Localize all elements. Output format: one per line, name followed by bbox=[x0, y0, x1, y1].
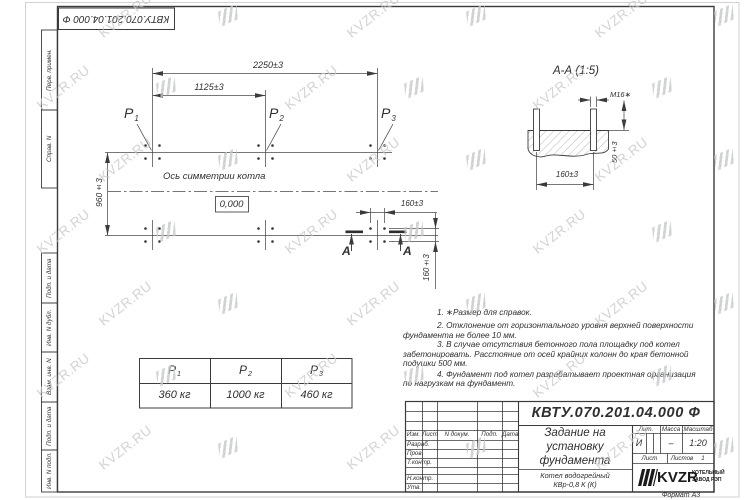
table-header-p3-sub: 3 bbox=[319, 371, 323, 378]
stamp-mass-label: Масса bbox=[660, 427, 682, 433]
dim-160-vertical: 160±3 bbox=[421, 248, 433, 288]
dim-2250: 2250±3 bbox=[238, 61, 298, 70]
stamp-product-line-2: КВр-0,8 К (К) bbox=[518, 481, 632, 488]
dim-160-horizontal: 160±3 bbox=[390, 200, 434, 208]
p1-base: P bbox=[124, 105, 133, 121]
note-line-7: 4. Фундамент под котел разрабатывает про… bbox=[437, 371, 696, 379]
stamp-col-podp: Подп. bbox=[477, 432, 502, 438]
stamp-row-nkontr: Н.контр. bbox=[407, 476, 433, 482]
table-header-p1-base: P bbox=[168, 363, 176, 377]
stamp-col-izm: Изм. bbox=[405, 432, 422, 438]
stamp-doc-number: КВТУ.070.201.04.000 Ф bbox=[518, 402, 714, 425]
table-value-p2: 1000 кг bbox=[210, 383, 281, 408]
drawing-linework bbox=[0, 0, 750, 500]
stamp-title-line-1: Задание на bbox=[518, 428, 632, 440]
stamp-row-tkontr: Т.контр. bbox=[407, 460, 432, 466]
stamp-row-prov: Пров. bbox=[407, 451, 423, 457]
elevation-mark: 0,000 bbox=[215, 197, 248, 212]
section-mark-a-left-label: A bbox=[342, 245, 351, 257]
thread-dim-m16: М16∗ bbox=[610, 91, 631, 99]
p2-label: P2 bbox=[269, 106, 284, 123]
stamp-col-data: Дата bbox=[502, 432, 518, 438]
stamp-title-line-2: установку bbox=[518, 442, 632, 454]
table-header-p2: P2 bbox=[210, 358, 281, 383]
table-header-p1: P1 bbox=[139, 358, 210, 383]
p2-base: P bbox=[269, 105, 278, 121]
section-view-title: А-А (1:5) bbox=[540, 66, 612, 78]
doc-number-top: КВТУ.070.201.04.000 Ф bbox=[58, 8, 174, 29]
plan-view-linework bbox=[105, 68, 439, 289]
note-line-4: 3. В случае отсутствия бетонного пола пл… bbox=[437, 341, 680, 349]
stamp-col-ndokum: N докум. bbox=[437, 432, 477, 438]
frame-label-vzam-inv: Взам. инв. N bbox=[42, 352, 57, 402]
p1-label: P1 bbox=[124, 106, 139, 123]
stamp-product-line-1: Котел водогрейный bbox=[518, 472, 632, 479]
kvzr-logo-sub1: КОТЕЛЬНЫЙ bbox=[692, 471, 725, 476]
bolt-height-dim-50: 50±3 bbox=[609, 136, 620, 168]
axis-of-symmetry-label: Ось симметрии котла bbox=[163, 172, 265, 182]
p3-sub: 3 bbox=[391, 114, 395, 123]
frame-label-inv-dubl: Инв. N дубл. bbox=[42, 303, 57, 352]
stamp-sheet-label: Лист bbox=[632, 456, 667, 462]
frame-label-inv-podl: Инв. N подл. bbox=[42, 450, 57, 492]
table-header-p3-base: P bbox=[310, 363, 318, 377]
dim-960: 960±3 bbox=[93, 170, 106, 216]
section-mark-a-right-label: A bbox=[403, 245, 412, 257]
p1-sub: 1 bbox=[134, 114, 138, 123]
kvzr-logo-icon bbox=[638, 469, 658, 486]
stamp-lit-label: Лит. bbox=[632, 427, 660, 433]
dim-1125: 1125±3 bbox=[179, 83, 239, 92]
note-line-1: 1. ∗Размер для справок. bbox=[437, 309, 532, 317]
anchor-bolt-dots bbox=[144, 144, 386, 243]
p3-base: P bbox=[381, 105, 390, 121]
format-label: Формат А3 bbox=[646, 492, 716, 499]
table-value-p3: 460 кг bbox=[281, 383, 352, 408]
stamp-lit-value: И bbox=[632, 434, 646, 453]
frame-label-podp-data-1: Подп. и дата bbox=[42, 253, 57, 303]
note-line-2: 2. Отклонение от горизонтального уровня … bbox=[437, 322, 693, 330]
table-header-p2-base: P bbox=[239, 363, 247, 377]
frame-label-podp-data-2: Подп. и дата bbox=[42, 402, 57, 450]
stamp-row-razrab: Разраб. bbox=[407, 442, 429, 448]
stamp-title-line-3: фундамента bbox=[518, 456, 632, 468]
table-header-p2-sub: 2 bbox=[248, 371, 252, 378]
p2-sub: 2 bbox=[279, 114, 283, 123]
stamp-sheets-label: Листов bbox=[667, 456, 697, 462]
bolt-spacing-dim-160: 160±3 bbox=[543, 171, 591, 179]
table-value-p1: 360 кг bbox=[139, 383, 210, 408]
note-line-3: фундамента не более 10 мм. bbox=[403, 332, 517, 340]
stamp-scale-value: 1:20 bbox=[682, 434, 714, 453]
note-line-6: подушки 500 мм. bbox=[403, 360, 468, 368]
drawing-sheet: КВТУ.070.201.04.000 Ф Перв. примен. Спра… bbox=[0, 0, 750, 500]
stamp-mass-value: – bbox=[660, 434, 682, 453]
frame-label-perv-primen: Перв. примен. bbox=[42, 30, 57, 110]
stamp-scale-label: Масштаб bbox=[682, 427, 714, 433]
stamp-sheets-value: 1 bbox=[697, 456, 709, 462]
stamp-row-utv: Утв. bbox=[407, 485, 421, 491]
note-line-8: по нагрузкам на фундамент. bbox=[403, 380, 515, 388]
frame-label-sprav-n: Справ. N bbox=[42, 110, 57, 188]
p3-label: P3 bbox=[381, 106, 396, 123]
table-header-p3: P3 bbox=[281, 358, 352, 383]
stamp-col-list: Лист bbox=[422, 432, 437, 438]
note-line-5: забетонировать. Расстояние от осей крайн… bbox=[403, 351, 688, 359]
kvzr-logo-sub2: ЗАВОД РЭП bbox=[692, 478, 722, 483]
table-header-p1-sub: 1 bbox=[177, 371, 181, 378]
